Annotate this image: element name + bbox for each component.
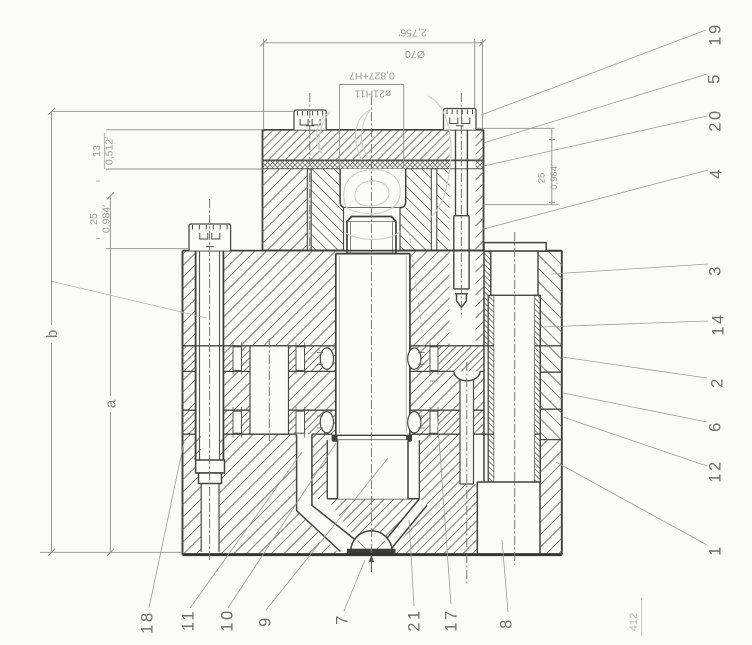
svg-text:10: 10	[218, 608, 236, 631]
svg-text:14: 14	[709, 312, 727, 335]
svg-text:0,512′: 0,512′	[103, 137, 115, 165]
svg-text:b: b	[44, 330, 61, 338]
svg-text:0,984′: 0,984′	[100, 205, 112, 233]
svg-text:13: 13	[91, 145, 103, 157]
svg-text:5: 5	[705, 72, 723, 84]
svg-text:0,827+H7: 0,827+H7	[349, 70, 395, 82]
svg-text:3: 3	[706, 264, 724, 276]
svg-text:0,984′: 0,984′	[549, 164, 560, 190]
svg-text:2: 2	[708, 376, 726, 388]
svg-text:ø21H11: ø21H11	[355, 88, 392, 100]
svg-text:20: 20	[706, 108, 724, 131]
svg-text:19: 19	[706, 22, 724, 45]
svg-text:21: 21	[405, 608, 423, 631]
svg-text:Ø70: Ø70	[405, 48, 425, 60]
svg-text:a: a	[102, 399, 119, 408]
svg-text:9: 9	[256, 615, 274, 627]
svg-text:25: 25	[537, 173, 548, 184]
svg-text:412: 412	[628, 613, 640, 631]
svg-text:8: 8	[497, 617, 515, 629]
svg-text:25: 25	[88, 213, 100, 225]
svg-text:17: 17	[442, 608, 460, 631]
svg-text:18: 18	[138, 610, 156, 633]
svg-text:11: 11	[179, 609, 197, 631]
svg-text:4: 4	[707, 167, 725, 179]
svg-text:6: 6	[706, 420, 724, 432]
svg-text:7: 7	[333, 613, 351, 625]
svg-text:1: 1	[706, 544, 724, 556]
svg-text:2,756′: 2,756′	[398, 27, 426, 39]
svg-text:12: 12	[706, 459, 724, 482]
